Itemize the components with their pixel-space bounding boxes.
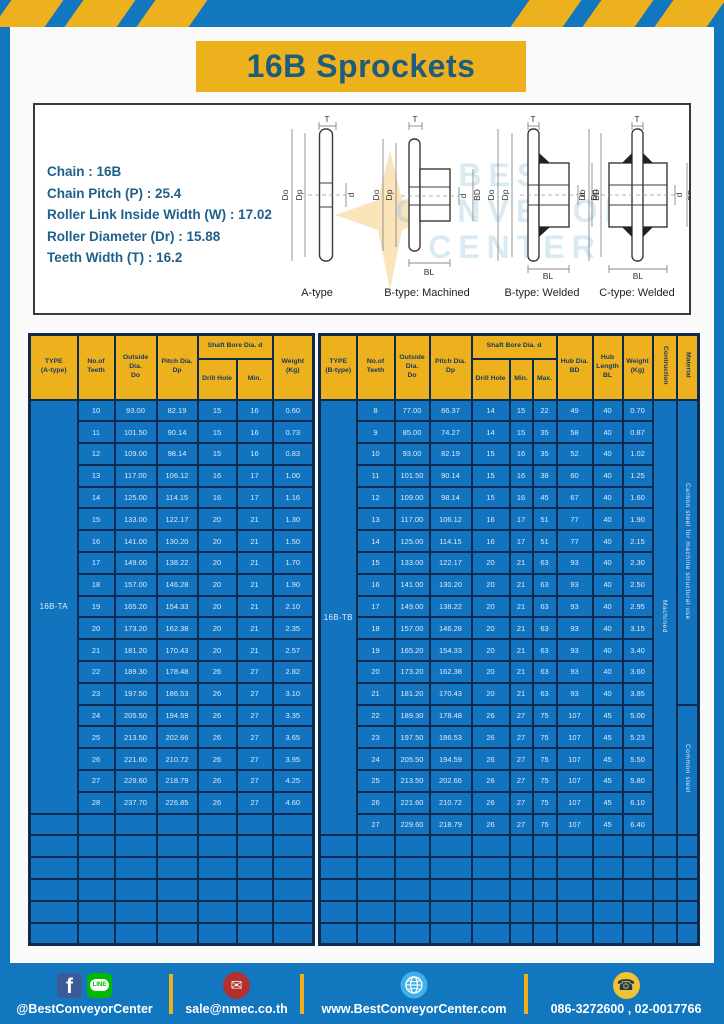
table-cell (472, 923, 510, 945)
table-cell: 17 (78, 552, 115, 574)
table-cell: 218.79 (157, 770, 198, 792)
table-cell (237, 857, 273, 879)
table-cell: 27 (510, 705, 533, 727)
table-row: 16B-TA1093.0082.1915160.60 (30, 400, 314, 422)
footer-email[interactable]: sale@nmec.co.th (185, 1002, 288, 1016)
footer-website-group: www.BestConveyorCenter.com (304, 963, 524, 1024)
table-cell: 157.00 (115, 574, 157, 596)
table-cell (677, 879, 699, 901)
table-cell: 173.20 (115, 617, 157, 639)
table-cell: 85.00 (395, 421, 430, 443)
table-b-body: 16B-TB877.0066.3714152249400.70MachinedC… (320, 400, 699, 945)
table-cell: 21 (510, 596, 533, 618)
table-cell: 1.70 (273, 552, 314, 574)
table-cell: 45 (593, 726, 623, 748)
table-cell: 75 (533, 748, 557, 770)
page-title: 16B Sprockets (247, 48, 476, 85)
table-cell (115, 835, 157, 857)
table-cell: 5.23 (623, 726, 653, 748)
spec-line: Teeth Width (T) : 16.2 (47, 247, 272, 269)
table-cell: 27 (237, 683, 273, 705)
table-cell (30, 814, 78, 836)
table-cell: 63 (533, 617, 557, 639)
table-cell (198, 879, 237, 901)
table-cell: 38 (533, 465, 557, 487)
table-cell: 186.53 (430, 726, 472, 748)
table-cell (653, 879, 677, 901)
table-cell: 3.35 (273, 705, 314, 727)
table-cell: 16 (198, 465, 237, 487)
table-cell: 63 (533, 552, 557, 574)
table-cell (623, 901, 653, 923)
table-cell (510, 857, 533, 879)
column-header-teeth: No.of Teeth (357, 335, 395, 400)
column-header-shaft-bore: Shaft Bore Dia. d (472, 335, 557, 359)
table-row: 22189.30178.48262775107455.00Common stee… (320, 705, 699, 727)
table-row: 13117.00106.1216175177401.90 (320, 508, 699, 530)
table-cell: 20 (472, 596, 510, 618)
spec-line: Chain Pitch (P) : 25.4 (47, 183, 272, 205)
table-cell: 63 (533, 596, 557, 618)
table-cell (395, 879, 430, 901)
table-cell (557, 901, 593, 923)
table-cell: 93 (557, 596, 593, 618)
table-cell: 189.30 (115, 661, 157, 683)
table-cell (157, 923, 198, 945)
table-cell (533, 879, 557, 901)
table-cell: 93 (557, 683, 593, 705)
table-cell: 122.17 (430, 552, 472, 574)
table-cell: 170.43 (430, 683, 472, 705)
table-cell: 106.12 (430, 508, 472, 530)
table-cell: 1.30 (273, 508, 314, 530)
table-cell: 2.10 (273, 596, 314, 618)
table-cell (157, 901, 198, 923)
table-cell: 45 (533, 487, 557, 509)
b-type-machined-diagram: T Do Dp d BD BL B-type: Machin (367, 113, 487, 299)
table-cell: 58 (557, 421, 593, 443)
line-icon: LINE (87, 973, 112, 998)
table-cell: 26 (198, 661, 237, 683)
table-cell: 93 (557, 661, 593, 683)
table-cell: 15 (78, 508, 115, 530)
table-cell: 1.16 (273, 487, 314, 509)
footer-phone-numbers[interactable]: 086-3272600 , 02-0017766 (551, 1002, 702, 1016)
table-cell: 133.00 (115, 508, 157, 530)
top-decoration-bar (0, 0, 724, 27)
table-cell: 10 (357, 443, 395, 465)
table-row: 24205.50194.59262775107455.50 (320, 748, 699, 770)
column-header-pitch: Pitch Dia. Dp (157, 335, 198, 400)
table-cell: 16 (510, 487, 533, 509)
table-cell (30, 879, 78, 901)
column-header-min: Min. (237, 359, 273, 400)
table-cell: 90.14 (157, 421, 198, 443)
table-cell: 77.00 (395, 400, 430, 422)
table-cell: 8 (357, 400, 395, 422)
table-cell: 114.15 (157, 487, 198, 509)
table-cell: 202.66 (157, 726, 198, 748)
spec-table-b-type: TYPE (B-type) No.of Teeth Outside Dia. D… (318, 333, 700, 946)
table-cell (557, 879, 593, 901)
table-cell: 15 (510, 421, 533, 443)
table-cell: 14 (78, 487, 115, 509)
spec-line: Roller Diameter (Dr) : 15.88 (47, 226, 272, 248)
table-cell: 237.70 (115, 792, 157, 814)
svg-text:BL: BL (543, 271, 554, 281)
column-header-hub-dia: Hub Dia. BD (557, 335, 593, 400)
table-cell: 19 (357, 639, 395, 661)
table-cell: 2.30 (623, 552, 653, 574)
table-cell (510, 901, 533, 923)
table-cell (357, 901, 395, 923)
table-cell (472, 835, 510, 857)
table-cell: 1.25 (623, 465, 653, 487)
table-cell: 28 (78, 792, 115, 814)
table-cell: 52 (557, 443, 593, 465)
svg-text:Do: Do (371, 189, 381, 200)
table-cell: 15 (198, 400, 237, 422)
table-cell: 45 (593, 814, 623, 836)
table-cell: 15 (472, 443, 510, 465)
table-row (320, 901, 699, 923)
table-row (320, 923, 699, 945)
table-cell: 16 (510, 443, 533, 465)
table-cell: 26 (472, 814, 510, 836)
table-cell: 23 (357, 726, 395, 748)
table-cell: 21 (510, 574, 533, 596)
table-cell: 162.38 (157, 617, 198, 639)
table-cell: 93 (557, 639, 593, 661)
table-cell: 20 (198, 530, 237, 552)
diagram-caption: A-type (262, 287, 372, 299)
table-cell: 22 (357, 705, 395, 727)
table-cell: 189.30 (395, 705, 430, 727)
table-cell: 14 (357, 530, 395, 552)
table-cell: 27 (237, 748, 273, 770)
table-cell: 15 (510, 400, 533, 422)
table-cell: 51 (533, 530, 557, 552)
table-cell: 40 (593, 465, 623, 487)
table-cell: 141.00 (115, 530, 157, 552)
table-cell: 21 (510, 552, 533, 574)
table-cell: 21 (237, 574, 273, 596)
table-cell: 40 (593, 400, 623, 422)
svg-text:Do: Do (280, 189, 290, 200)
table-cell: 75 (533, 726, 557, 748)
table-cell: 26 (472, 748, 510, 770)
table-a-body: 16B-TA1093.0082.1915160.6011101.5090.141… (30, 400, 314, 945)
table-cell (237, 835, 273, 857)
table-cell (395, 857, 430, 879)
table-cell: 16 (472, 530, 510, 552)
table-cell: 2.50 (623, 574, 653, 596)
table-cell (533, 923, 557, 945)
table-cell (157, 835, 198, 857)
table-cell: 20 (472, 683, 510, 705)
table-cell (237, 814, 273, 836)
table-row: 20173.20162.3820216393403.60 (320, 661, 699, 683)
table-cell: 21 (78, 639, 115, 661)
table-cell: 13 (78, 465, 115, 487)
table-cell: 165.20 (115, 596, 157, 618)
stripe-icon (580, 0, 655, 27)
table-cell: 154.33 (157, 596, 198, 618)
table-cell (653, 857, 677, 879)
column-header-outside: Outside Dia. Do (115, 335, 157, 400)
column-header-material: Material (677, 335, 699, 400)
table-cell: 107 (557, 726, 593, 748)
chain-specs: Chain : 16B Chain Pitch (P) : 25.4 Rolle… (47, 161, 272, 269)
table-cell: 21 (510, 639, 533, 661)
stripe-icon (134, 0, 209, 27)
table-cell: 3.60 (623, 661, 653, 683)
table-cell (510, 923, 533, 945)
table-cell: 93 (557, 617, 593, 639)
table-cell: 2.57 (273, 639, 314, 661)
table-cell: 3.85 (623, 683, 653, 705)
table-cell (198, 901, 237, 923)
table-cell (273, 901, 314, 923)
table-cell (677, 835, 699, 857)
table-cell (198, 857, 237, 879)
table-cell: 20 (198, 574, 237, 596)
svg-text:BD: BD (472, 189, 482, 201)
table-cell: 107 (557, 792, 593, 814)
table-cell: 186.53 (157, 683, 198, 705)
table-cell: 16 (237, 443, 273, 465)
table-cell: 17 (357, 596, 395, 618)
table-cell: 170.43 (157, 639, 198, 661)
table-cell: 27 (357, 814, 395, 836)
svg-text:Do: Do (486, 189, 496, 200)
svg-text:T: T (634, 114, 639, 124)
table-cell: 21 (510, 661, 533, 683)
table-cell (320, 835, 357, 857)
table-cell (623, 835, 653, 857)
table-cell (115, 857, 157, 879)
table-cell: 0.70 (623, 400, 653, 422)
table-cell (237, 923, 273, 945)
table-cell: 67 (557, 487, 593, 509)
table-cell: 98.14 (157, 443, 198, 465)
table-cell: 15 (357, 552, 395, 574)
svg-text:T: T (412, 114, 417, 124)
table-cell: 2.82 (273, 661, 314, 683)
table-cell: 40 (593, 487, 623, 509)
table-cell: 74.27 (430, 421, 472, 443)
table-cell: 2.95 (623, 596, 653, 618)
table-cell: 107 (557, 705, 593, 727)
table-cell (115, 879, 157, 901)
phone-icon: ☎ (613, 972, 640, 999)
table-cell: 26 (472, 726, 510, 748)
table-cell (157, 857, 198, 879)
table-cell: 14 (472, 400, 510, 422)
table-cell: 210.72 (157, 748, 198, 770)
column-header-weight: Weight (Kg) (623, 335, 653, 400)
table-cell: 16 (472, 508, 510, 530)
table-cell: 20 (198, 639, 237, 661)
table-cell: 141.00 (395, 574, 430, 596)
table-cell (237, 901, 273, 923)
table-cell: 106.12 (157, 465, 198, 487)
table-cell (273, 923, 314, 945)
table-cell: 6.40 (623, 814, 653, 836)
table-cell: 18 (357, 617, 395, 639)
table-cell: 16 (78, 530, 115, 552)
table-cell: 146.28 (430, 617, 472, 639)
table-cell: 63 (533, 574, 557, 596)
column-header-min: Min. (510, 359, 533, 400)
column-header-pitch: Pitch Dia. Dp (430, 335, 472, 400)
table-cell: 194.59 (430, 748, 472, 770)
table-cell: 17 (237, 465, 273, 487)
table-cell: 77 (557, 530, 593, 552)
spec-table-a-type: TYPE (A-type) No.of Teeth Outside Dia. D… (28, 333, 315, 946)
table-cell (198, 923, 237, 945)
svg-text:Dp: Dp (589, 189, 599, 200)
table-cell (320, 923, 357, 945)
table-cell: 98.14 (430, 487, 472, 509)
table-cell: 9 (357, 421, 395, 443)
table-cell: 122.17 (157, 508, 198, 530)
table-cell: 1.90 (273, 574, 314, 596)
diagram-panel: BEST CONVEYOR CENTER Chain : 16B Chain P… (33, 103, 691, 315)
table-cell: 181.20 (395, 683, 430, 705)
table-cell: 93.00 (395, 443, 430, 465)
table-cell: 4.60 (273, 792, 314, 814)
table-cell: 45 (593, 705, 623, 727)
table-cell: 1.50 (273, 530, 314, 552)
table-cell: 45 (593, 770, 623, 792)
table-cell (557, 835, 593, 857)
table-cell: 17 (237, 487, 273, 509)
stripe-icon (62, 0, 137, 27)
email-icon: ✉ (223, 972, 250, 999)
table-cell: 17 (510, 530, 533, 552)
table-cell: 109.00 (115, 443, 157, 465)
table-cell: 25 (357, 770, 395, 792)
table-cell: 21 (357, 683, 395, 705)
table-cell (653, 923, 677, 945)
table-cell: 21 (237, 552, 273, 574)
table-cell: 3.15 (623, 617, 653, 639)
table-cell: 60 (557, 465, 593, 487)
footer-social-handle[interactable]: @BestConveyorCenter (16, 1002, 153, 1016)
table-cell: 20 (198, 617, 237, 639)
column-header-drill: Drill Hole (198, 359, 237, 400)
column-header-type: TYPE (A-type) (30, 335, 78, 400)
table-row: 23197.50186.53262775107455.23 (320, 726, 699, 748)
table-cell: 22 (78, 661, 115, 683)
table-cell: 45 (593, 748, 623, 770)
table-cell: 15 (198, 443, 237, 465)
table-cell: 5.80 (623, 770, 653, 792)
table-cell: 82.19 (157, 400, 198, 422)
table-cell: 6.10 (623, 792, 653, 814)
table-cell (395, 923, 430, 945)
svg-text:BD: BD (686, 189, 691, 201)
table-cell (198, 814, 237, 836)
table-cell: 75 (533, 792, 557, 814)
table-cell: 40 (593, 683, 623, 705)
table-cell: 35 (533, 421, 557, 443)
table-cell: 40 (593, 617, 623, 639)
table-cell: 75 (533, 770, 557, 792)
table-cell: 26 (198, 748, 237, 770)
table-row: 27229.60218.79262775107456.40 (320, 814, 699, 836)
table-row: 16B-TB877.0066.3714152249400.70MachinedC… (320, 400, 699, 422)
table-cell (593, 857, 623, 879)
type-label-cell: 16B-TB (320, 400, 357, 836)
table-cell (78, 879, 115, 901)
table-cell: 197.50 (115, 683, 157, 705)
diagram-caption: B-type: Machined (367, 287, 487, 299)
table-cell (273, 835, 314, 857)
stripe-icon (508, 0, 583, 27)
table-cell: 40 (593, 639, 623, 661)
table-cell: 19 (78, 596, 115, 618)
table-cell: 82.19 (430, 443, 472, 465)
table-cell: 194.59 (157, 705, 198, 727)
table-cell (472, 857, 510, 879)
footer-website[interactable]: www.BestConveyorCenter.com (321, 1002, 506, 1016)
table-cell: 22 (533, 400, 557, 422)
table-cell: 117.00 (115, 465, 157, 487)
table-cell: 114.15 (430, 530, 472, 552)
table-cell: 26 (78, 748, 115, 770)
svg-text:Dp: Dp (384, 189, 394, 200)
table-cell: 20 (472, 639, 510, 661)
table-cell: 16 (237, 400, 273, 422)
table-cell: 27 (510, 814, 533, 836)
table-cell: 26 (472, 770, 510, 792)
table-cell (357, 923, 395, 945)
table-cell (557, 923, 593, 945)
table-cell: 21 (510, 617, 533, 639)
table-cell (320, 901, 357, 923)
table-cell: 66.37 (430, 400, 472, 422)
material-cell: Carbon steel for machine structural use (677, 400, 699, 705)
table-cell: 26 (472, 792, 510, 814)
table-row: 26221.60210.72262775107456.10 (320, 792, 699, 814)
table-cell: 15 (198, 421, 237, 443)
svg-text:T: T (530, 114, 535, 124)
table-cell: 125.00 (115, 487, 157, 509)
table-cell: 162.38 (430, 661, 472, 683)
table-cell: 117.00 (395, 508, 430, 530)
table-cell: 125.00 (395, 530, 430, 552)
table-cell: 130.20 (430, 574, 472, 596)
table-cell (677, 901, 699, 923)
table-cell (273, 879, 314, 901)
table-cell (115, 923, 157, 945)
table-row (320, 879, 699, 901)
table-cell (593, 923, 623, 945)
table-row: 1093.0082.1915163552401.02 (320, 443, 699, 465)
table-cell: 25 (78, 726, 115, 748)
column-header-hub-length: Hub Length BL (593, 335, 623, 400)
table-cell (357, 835, 395, 857)
type-label-cell: 16B-TA (30, 400, 78, 814)
table-row (30, 923, 314, 945)
table-cell (623, 879, 653, 901)
table-row: 985.0074.2714153558400.87 (320, 421, 699, 443)
stripe-icon (652, 0, 724, 27)
table-cell: 107 (557, 748, 593, 770)
table-cell: 197.50 (395, 726, 430, 748)
